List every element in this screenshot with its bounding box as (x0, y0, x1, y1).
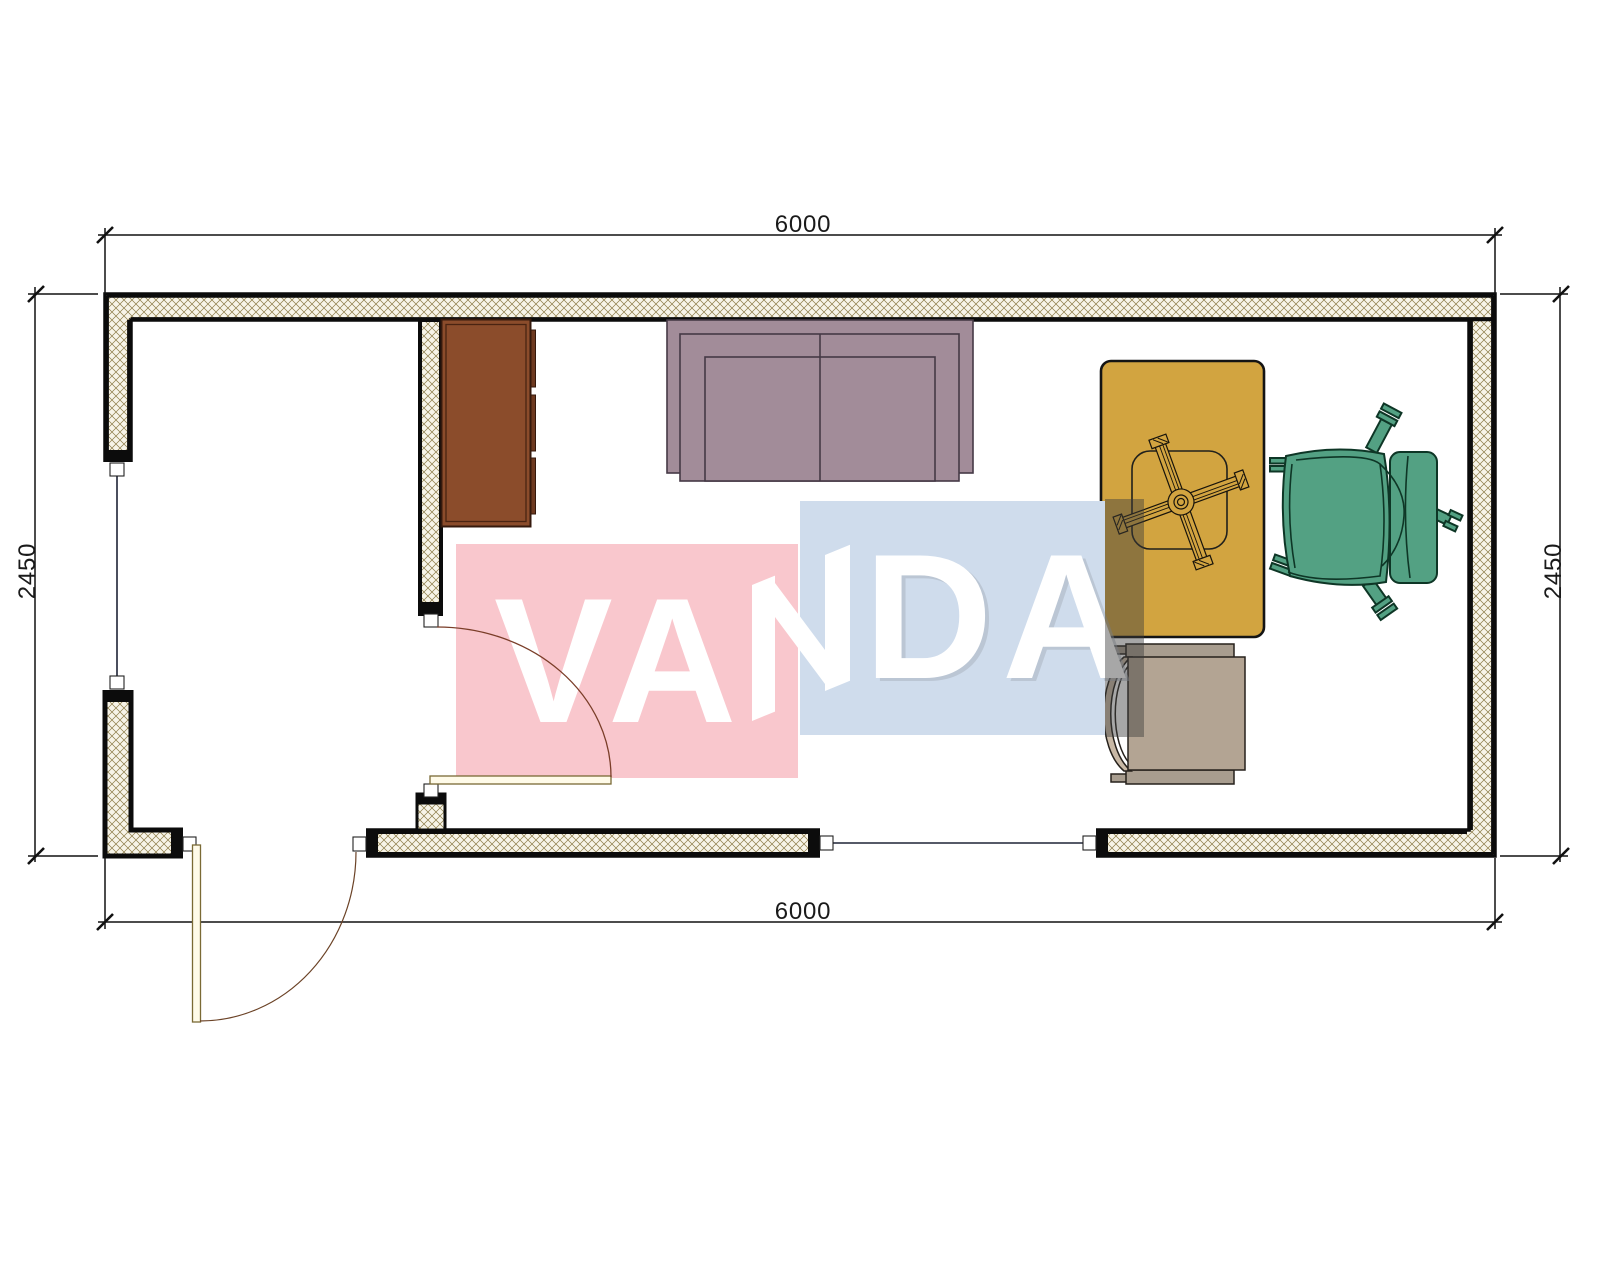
svg-text:V: V (494, 561, 613, 760)
svg-text:2450: 2450 (14, 543, 41, 600)
svg-text:A: A (608, 561, 737, 760)
svg-text:D: D (864, 517, 993, 716)
svg-text:2450: 2450 (1540, 543, 1567, 600)
svg-text:6000: 6000 (775, 211, 832, 238)
svg-text:6000: 6000 (775, 898, 832, 925)
